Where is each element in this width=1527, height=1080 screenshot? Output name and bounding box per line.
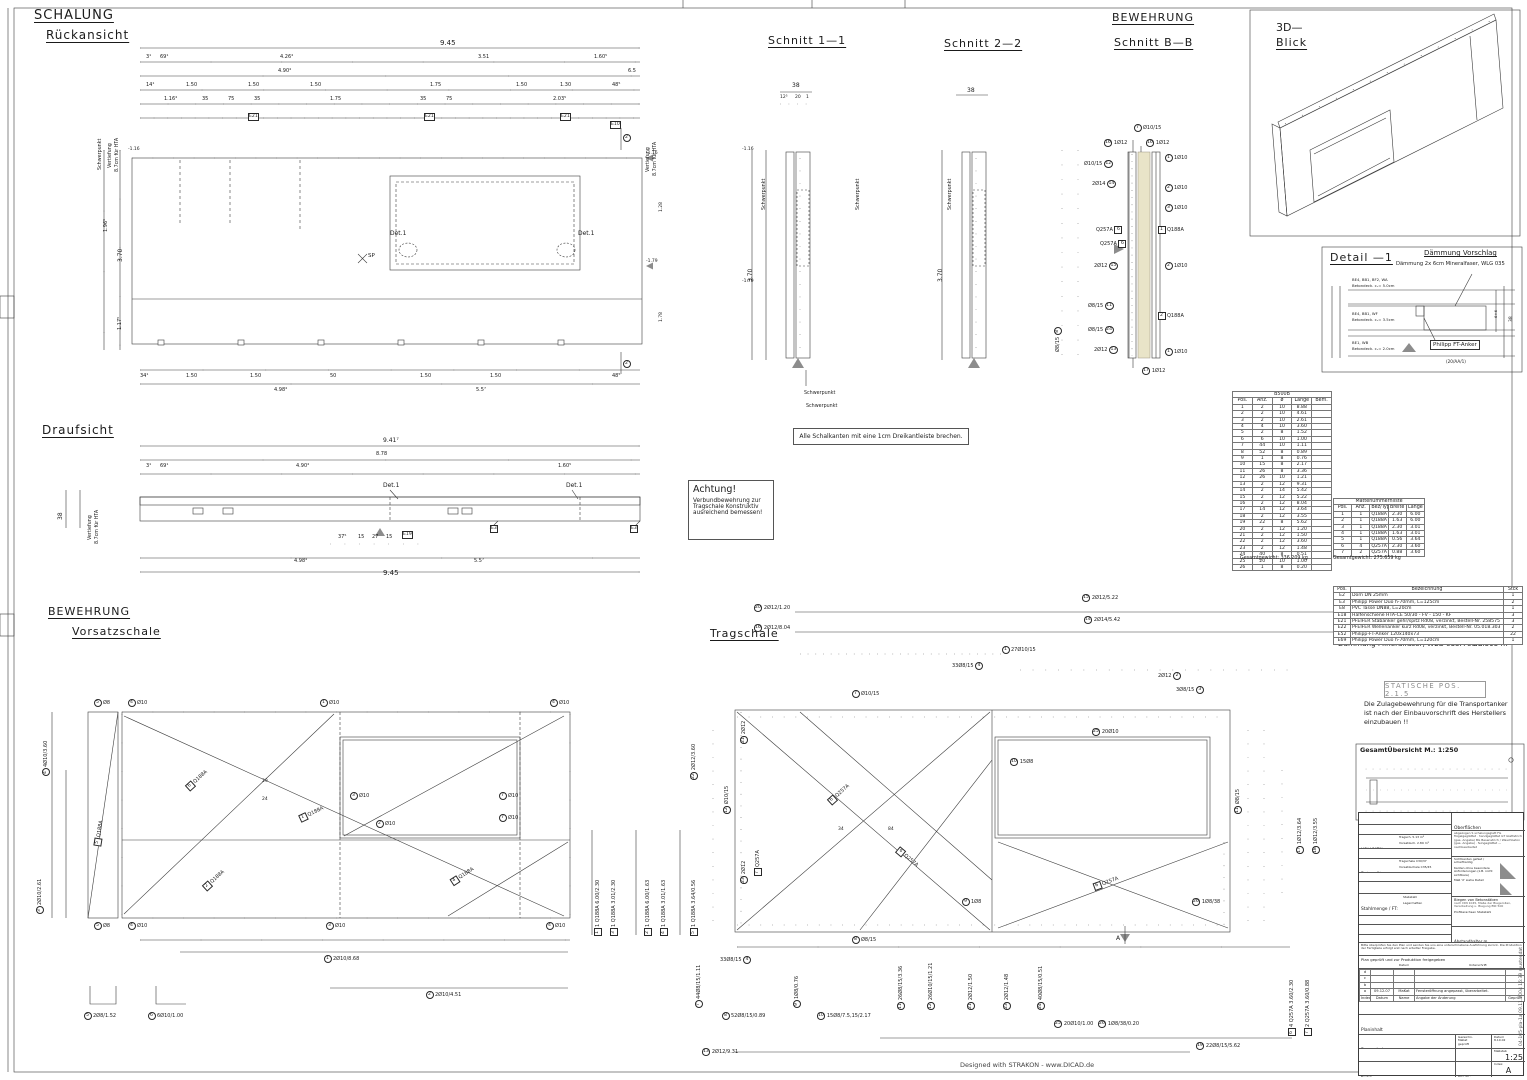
drawing-label: Det.1	[578, 231, 594, 238]
callout-suffix: 1Ø10	[1174, 156, 1187, 161]
mesh-callout: 7 2 Q257A 3.60/0.88	[1304, 980, 1312, 1038]
uebersicht-minimap	[1356, 744, 1524, 820]
position-number-badge: 21	[967, 1002, 975, 1011]
position-number-badge: 26	[1098, 1020, 1107, 1028]
position-number-badge: 7	[499, 792, 507, 800]
embed-row: E22PFEIFER Wellenanker kurz Rd08, verzin…	[1334, 625, 1523, 631]
rebar-callout: 3 Ø10	[348, 792, 369, 800]
position-number-badge: 2	[644, 929, 652, 937]
callout-suffix: 1 Q188A 3.01/2.30	[612, 880, 617, 927]
callout-suffix: 6Ø10/1.00	[157, 1014, 183, 1019]
drawing-label: 1.50	[516, 83, 527, 89]
position-number-badge: 3	[36, 907, 44, 915]
position-number-badge: 10	[817, 1012, 826, 1020]
drawing-label: 50	[330, 374, 336, 380]
achtung-title: Achtung!	[693, 484, 769, 495]
callout-prefix: 2Ø14	[1092, 182, 1105, 187]
tb-freigabe: Bitte überprüfen Sie den Plan und senden…	[1359, 943, 1525, 956]
rebar-callout: 1 2Ø10/8.68	[322, 955, 359, 963]
rebar-callout: 9 1Ø8/0.76	[793, 976, 801, 1010]
position-number-badge: 6	[1114, 226, 1122, 234]
position-number-badge: 9	[962, 898, 970, 906]
callout-suffix: 1Ø8/38	[1202, 900, 1220, 905]
drawing-label: 8.78	[376, 452, 387, 458]
callout-suffix: 2Ø12	[742, 721, 747, 734]
tb-auftraggeber: Auftraggeber	[1359, 1049, 1455, 1062]
mesh-callout: E3	[628, 525, 640, 533]
ft-anker-label: Philipp FT-Anker	[1430, 340, 1480, 350]
tb-datum-label: Datum	[1399, 964, 1409, 967]
callout-suffix: 2Ø14/5.42	[1094, 618, 1120, 623]
embed-row: E21PFEIFER Stabanker gehr/spitz Rd08, ve…	[1334, 619, 1523, 625]
drawing-sheet: SCHALUNG Rückansicht Schnitt 1—1 Schnitt…	[0, 0, 1527, 1080]
mesh-callout: 5 1 Q188A 3.64/0.56	[690, 880, 698, 938]
callout-suffix: 15Ø8/7.5,15/2.17	[827, 1014, 871, 1019]
rebar-callout: 5 2Ø8/1.52	[82, 1012, 116, 1020]
rebar-callout: 19 22Ø8/15/5.62	[1194, 1042, 1240, 1050]
position-number-badge: E3	[630, 525, 639, 533]
position-number-badge: 3	[610, 929, 618, 937]
rebar-callout: 2 2Ø10/4.51	[424, 991, 461, 999]
drawing-label: 9.41⁷	[383, 438, 399, 445]
tb-flaeche: FLÄCHE: m²	[1359, 825, 1451, 835]
callout-suffix: 2Ø12/9.31	[712, 1050, 738, 1055]
rebar-callout: 2Ø12 15	[1094, 262, 1119, 270]
statik-note-1: Die Zulagebewehrung für die Transportank…	[1364, 701, 1508, 708]
drawing-label: 5.5⁷	[476, 388, 486, 394]
callout-prefix: 2Ø12	[1094, 348, 1107, 353]
position-number-badge: 2	[426, 991, 434, 999]
drawing-label: 3¹	[146, 464, 151, 470]
position-number-badge: 5	[84, 1012, 92, 1020]
rebar-callout: 1 1Ø10	[1163, 348, 1187, 356]
position-number-badge: 1	[320, 699, 328, 707]
position-number-badge: 4	[743, 956, 751, 964]
drawing-label: BE1, WB	[1352, 341, 1368, 345]
rebar-callout: 2	[621, 134, 632, 142]
drawing-label: 1.50	[248, 83, 259, 89]
position-number-badge: 15	[1082, 594, 1091, 602]
tb-stahl: Stahlmenge / FT: Stabstahl Lagermatten	[1359, 894, 1451, 916]
drawing-label: Schwerpunkt	[804, 391, 835, 396]
drawing-label: 69¹	[160, 55, 168, 61]
tb-bauteil-label: Bauteil	[1361, 1075, 1372, 1077]
position-number-badge: 9	[793, 1001, 801, 1009]
position-number-badge: 11	[1234, 806, 1242, 815]
mesh-total: Gesamtgewicht: 275.659 kg	[1333, 556, 1401, 561]
tragschale-view	[592, 612, 1470, 1052]
callout-suffix: 22Ø8/15/5.62	[1206, 1044, 1240, 1049]
detail-code-label: (20/AA/1)	[1446, 360, 1466, 365]
rebar-callout: 7 Ø10	[497, 814, 518, 822]
tb-stahl-1: Stabstahl	[1403, 896, 1417, 899]
steel-row: 26180.20	[1233, 564, 1332, 570]
callout-suffix: 1Ø10	[1174, 264, 1187, 269]
tb-kanten-1: Sichtkanten gefast / scharfkantig	[1454, 858, 1494, 865]
callout-suffix: Ø8	[103, 924, 110, 929]
drawing-label: 1.16⁴	[164, 97, 177, 103]
callout-suffix: 1 Q188A 6.00/2.30	[596, 880, 601, 927]
tb-surfaces-text: abgezogen S schalungsglatt FG flügelgegl…	[1454, 832, 1523, 849]
drawing-label: 27	[372, 535, 378, 541]
callout-suffix: 44Ø8/15/1.11	[697, 965, 702, 999]
callout-suffix: 1 Q188A 6.00/1.63	[646, 880, 651, 927]
rebar-callout: 4 Ø10	[548, 699, 569, 707]
callout-prefix: 2Ø12	[1158, 674, 1171, 679]
schnittbb-title: Schnitt B—B	[1114, 36, 1193, 49]
callout-suffix: 1Ø10	[1174, 206, 1187, 211]
callout-prefix: Ø8/15	[1088, 328, 1103, 333]
tb-profil-label: Profilierachsen Stabstahl	[1454, 911, 1523, 914]
drawing-label: Schwerpunkt	[98, 139, 103, 170]
callout-prefix: 33Ø8/15	[952, 664, 974, 669]
position-number-badge: 12	[927, 1002, 935, 1011]
rueckansicht-view	[104, 48, 653, 384]
title-block: STÜCKZAHL: 1 Stück FLÄCHE: m² VOLUMEN: T…	[1358, 812, 1524, 1076]
callout-suffix: Ø10	[359, 794, 369, 799]
callout-prefix: Ø10/15	[1084, 162, 1102, 167]
drawing-label: 4.90⁴	[296, 464, 309, 470]
mesh-callout: 6 4 Q257A 3.60/2.30	[1288, 980, 1296, 1038]
position-number-badge: 19	[1196, 1042, 1205, 1050]
position-number-badge: 4	[550, 699, 558, 707]
statik-note-3: einzubauen !!	[1364, 719, 1408, 726]
tb-biegen: Biegen von Betonstäben nach DIN 1045, Ma…	[1451, 897, 1525, 927]
position-number-badge: 1	[324, 955, 332, 963]
rebar-callout: 1 27Ø10/15	[1000, 646, 1036, 654]
rebar-callout: 5 Ø8	[92, 922, 110, 930]
position-number-badge: 14	[1107, 180, 1116, 188]
rebar-callout: 33Ø8/15 4	[952, 662, 985, 670]
position-number-badge: 1	[1165, 348, 1173, 356]
rebar-callout: 23 2Ø12/1.48	[1003, 974, 1011, 1012]
callout-suffix: 2Ø12/5.22	[1092, 596, 1118, 601]
tb-interne: interne dB-Position	[1359, 916, 1451, 925]
drawing-label: 1.50	[186, 374, 197, 380]
tb-betonguete-1: Tragschale C30/37	[1399, 860, 1427, 863]
mesh-callout: 1 Q188A	[1156, 226, 1184, 234]
drawing-label: Schwerpunkt	[856, 179, 861, 210]
tb-gezeichnet: Gezeichn. MaKat geprüft	[1455, 1035, 1491, 1049]
drawing-label: 8.7cm für HTA	[115, 138, 120, 172]
tb-index-value: A	[1494, 1066, 1523, 1075]
position-number-badge: 3	[1165, 204, 1173, 212]
tb-auftragsnr: Auftragsnummer	[1455, 1049, 1491, 1062]
position-number-badge: 25	[1092, 728, 1101, 736]
schalkanten-note: Alle Schalkanten mit eine 1cm Dreikantle…	[793, 428, 969, 445]
position-number-badge: 11	[897, 1002, 905, 1011]
callout-prefix: Ø8/15	[1056, 337, 1061, 352]
rebar-callout: 13 2Ø12/9.31	[700, 1048, 738, 1056]
tb-surfaces: abgezogen S schalungsglatt FG flügelgegl…	[1451, 831, 1525, 857]
vorsatzschale-title: Vorsatzschale	[72, 625, 161, 638]
mesh-callout: E21	[246, 113, 261, 121]
position-number-badge: 16	[1146, 139, 1155, 147]
callout-suffix: 1Ø8/0.76	[795, 976, 800, 999]
position-number-badge: 5	[93, 838, 102, 847]
callout-suffix: 52Ø8/15/0.89	[731, 1014, 765, 1019]
mesh-callout: E19	[400, 531, 415, 539]
vorsatzschale-view	[52, 712, 570, 1004]
drawing-label: 69¹	[160, 464, 168, 470]
rebar-callout: 15 2Ø12/5.22	[1080, 594, 1118, 602]
drawing-label: 1.75	[330, 97, 341, 103]
rebar-callout: 5 Ø8	[92, 699, 110, 707]
position-number-badge: 1	[1002, 646, 1010, 654]
drawing-label: 1.60⁵	[558, 464, 571, 470]
callout-suffix: Ø10	[329, 701, 339, 706]
mesh-callout: 4 1 Q188A 3.01/1.63	[660, 880, 668, 938]
rebar-callout: 16 2Ø12/8.04	[752, 624, 790, 632]
rebar-callout: 4 4Ø10/3.60	[42, 741, 50, 778]
rebar-callout: 4 Ø10	[126, 922, 147, 930]
drawing-label: 4.98⁴	[274, 388, 287, 394]
rebar-callout: 2	[621, 360, 632, 368]
tb-stueckzahl: STÜCKZAHL: 1 Stück	[1359, 813, 1451, 825]
position-number-badge: 2	[376, 820, 384, 828]
callout-prefix: 2Ø12	[1094, 264, 1107, 269]
rebar-callout: 12 26Ø10/15/1.21	[927, 963, 935, 1012]
drawing-label: 75	[228, 97, 234, 103]
drawing-label: 48⁵	[612, 374, 620, 380]
rebar-callout: 26 1Ø8/38	[1190, 898, 1220, 906]
drawing-label: 4.26⁴	[280, 55, 293, 61]
callout-prefix: Q257A	[1096, 228, 1113, 233]
drawing-label: 38	[58, 512, 65, 520]
position-number-badge: 18	[1312, 846, 1320, 855]
rebar-callout: 8 52Ø8/15/0.89	[720, 1012, 765, 1020]
callout-suffix: 2Ø12/1.50	[969, 974, 974, 1000]
callout-suffix: Ø10/15	[861, 692, 879, 697]
drawing-label: 2.03⁵	[553, 97, 566, 103]
drawing-label: 1.96⁵	[104, 219, 110, 232]
callout-suffix: 1Ø10	[1174, 350, 1187, 355]
rebar-callout: 24 40Ø8/15/0.51	[1037, 966, 1045, 1012]
drawing-label: Det.1	[383, 483, 399, 490]
drawing-label: 1.28	[660, 202, 665, 212]
rebar-callout: 25 20Ø10	[1090, 728, 1119, 736]
tb-planinhalt-label: Planinhalt	[1361, 1028, 1383, 1033]
blick3d-title-2: Blick	[1276, 36, 1307, 49]
drawing-label: 1.50	[420, 374, 431, 380]
steel-bar-list: B500B Pos. Anz. ø Länge Bem. 12108.88 22…	[1232, 391, 1332, 571]
drawing-label: 1.78	[660, 312, 665, 322]
drawing-label: BE4, BB1, WF	[1352, 312, 1378, 316]
position-number-badge: 1	[1158, 226, 1166, 234]
daemmung-mineral-label: Dämmung 2x 6cm Mineralfaser, WLG 035	[1396, 262, 1505, 268]
position-number-badge: 2	[623, 134, 631, 142]
tb-unterschrift-label: Unterschrift	[1469, 964, 1487, 967]
tb-stahl-2: Lagermatten	[1403, 902, 1422, 905]
drawing-label: -1.16	[742, 148, 754, 153]
callout-suffix: 40Ø8/15/0.51	[1039, 966, 1044, 1000]
rebar-callout: 17 1Ø12/3.64	[1296, 818, 1304, 856]
drawing-label: 35	[254, 97, 260, 103]
tb-volumen: VOLUMEN: Tragsch. 5.13 m³ Vorsatzsch. 2.…	[1359, 835, 1451, 849]
col-typ: Bez/Typ	[1370, 505, 1388, 511]
rebar-callout: 11 Ø8/15	[1234, 789, 1242, 816]
rebar-callout: 7 Ø10/15	[850, 690, 879, 698]
position-number-badge: 5	[94, 699, 102, 707]
drawing-label: 9.45	[383, 570, 399, 578]
callout-suffix: 26Ø10/15/1.21	[929, 963, 934, 1001]
detail1-title: Detail —1	[1330, 251, 1393, 264]
callout-suffix: Q257A	[756, 850, 761, 867]
rebar-callout: 12 Ø10/15	[723, 786, 731, 816]
tb-volumen-2: Vorsatzsch. 2.89 m³	[1399, 842, 1429, 845]
callout-prefix: Q257A	[1100, 242, 1117, 247]
drawing-label: 48⁵	[612, 83, 620, 89]
statik-pos-box: STATISCHE POS. 2.1.5	[1384, 681, 1486, 698]
position-number-badge: 17	[1296, 846, 1304, 855]
callout-suffix: 2Ø12/1.20	[764, 606, 790, 611]
position-number-badge: 7	[1134, 124, 1142, 132]
drawing-label: Betondeck. cᵥ= 3.5cm	[1352, 318, 1395, 322]
uebersicht-title: GesamtÜbersicht M.: 1:250	[1360, 747, 1458, 754]
drawing-label: Schwerpunkt	[948, 179, 953, 210]
callout-suffix: 1Ø8/38/0.20	[1108, 1022, 1139, 1027]
position-number-badge: 5	[94, 922, 102, 930]
col-breite: Breite	[1388, 505, 1406, 511]
drawing-label: 1	[806, 96, 809, 101]
mesh-callout: E21	[422, 113, 437, 121]
rebar-callout: Ø8/15 11	[1088, 302, 1115, 310]
blick3d-title-1: 3D—	[1276, 22, 1302, 34]
draufsicht-view	[66, 446, 640, 572]
rebar-callout: 2Ø12 13	[1094, 346, 1119, 354]
position-number-badge: 6	[1118, 240, 1126, 248]
drawing-label: 20	[795, 96, 801, 101]
drawing-label: 1.50	[490, 374, 501, 380]
tb-plannr-label: Plan-Nr.:	[1458, 1075, 1471, 1077]
callout-suffix: 2Ø12/3.60	[692, 744, 697, 770]
rebar-callout: 11 26Ø8/15/3.36	[897, 966, 905, 1012]
drawing-label: A	[1116, 936, 1120, 943]
drawing-label: 8.7cm für HTA	[653, 142, 658, 176]
callout-suffix: 1 Q188A 3.01/1.63	[662, 880, 667, 927]
rebar-callout: 26 1Ø8/38/0.20	[1096, 1020, 1139, 1028]
drawing-label: 29	[262, 780, 268, 785]
tb-freigabe2-text: Plan geprüft und zur Produktion freigege…	[1361, 957, 1523, 962]
position-number-badge: 8	[1054, 327, 1062, 335]
drawing-label: 37⁵	[338, 535, 346, 541]
kanten-triangle2-icon	[1500, 883, 1512, 895]
tb-freigabe-text: Bitte überprüfen Sie den Plan und senden…	[1361, 944, 1523, 951]
callout-suffix: Q188A	[96, 820, 104, 837]
tb-oberflaechen: Oberflächen Soweit nichts anderes vermer…	[1451, 813, 1525, 831]
rebar-callout: Ø10/15 12	[1084, 160, 1114, 168]
rebar-callout: 10 15Ø8/7.5,15/2.17	[815, 1012, 871, 1020]
position-number-badge: 4	[128, 699, 136, 707]
tb-expo: Expositionskl.: siehe Detail 1	[1359, 873, 1451, 882]
mesh-callout: E3	[488, 525, 500, 533]
col-laenge: Länge	[1292, 398, 1312, 404]
callout-prefix: 33Ø8/15	[720, 958, 742, 963]
drawing-label: Vertiefung	[88, 515, 93, 540]
callout-suffix: Q188A	[1167, 228, 1184, 233]
rebar-callout: 16 1Ø12	[1102, 139, 1127, 147]
rebar-callout: Ø8/15 24	[1088, 326, 1115, 334]
drawing-label: 1.50	[186, 83, 197, 89]
drawing-label: 35	[202, 97, 208, 103]
callout-suffix: Ø10/15	[1143, 126, 1161, 131]
drawing-label: 1.50	[310, 83, 321, 89]
position-number-badge: 4	[128, 922, 136, 930]
callout-suffix: Ø10	[335, 924, 345, 929]
rebar-callout: Ø8/15 8	[1054, 326, 1062, 352]
strakon-credit: Designed with STRAKON - www.DICAD.de	[960, 1062, 1094, 1069]
tb-massstab-value: 1:25	[1494, 1053, 1523, 1062]
tb-geprueft-label: geprüft	[1458, 1043, 1489, 1046]
drawing-label: Vertiefung	[646, 147, 651, 172]
position-number-badge: E21	[248, 113, 260, 121]
position-number-badge: 4	[975, 662, 983, 670]
callout-suffix: Ø10	[508, 816, 518, 821]
position-number-badge: 8	[722, 1012, 730, 1020]
drawing-label: 1.50	[250, 374, 261, 380]
position-number-badge: 25	[1054, 1020, 1063, 1028]
drawing-label: Betondeck. cᵥ= 5.0cm	[1352, 284, 1395, 288]
position-number-badge: E19	[402, 531, 414, 539]
position-number-badge: 10	[1010, 758, 1019, 766]
position-number-badge: 7	[499, 814, 507, 822]
tb-kanten-2: Kanten ohne besondere Anforderungen (z.B…	[1454, 867, 1494, 877]
position-number-badge: 7	[754, 869, 762, 877]
callout-suffix: Ø10	[385, 822, 395, 827]
tb-bauteil: Bauteil Werkplanung	[1359, 1062, 1455, 1077]
tb-abstand: Abstandhalter m. (.DBV-Merkblatt 'Abstan…	[1451, 927, 1525, 943]
drawing-label: 8.7cm für HTA	[95, 510, 100, 544]
callout-suffix: 4 Q257A 3.60/2.30	[1290, 980, 1295, 1027]
rebar-callout: 16 1Ø12	[1144, 139, 1169, 147]
position-number-badge: 2	[1158, 312, 1166, 320]
rebar-callout: 20 2Ø12/1.20	[752, 604, 790, 612]
col-laenge: Länge	[1406, 505, 1424, 511]
schnitt22-title: Schnitt 2—2	[944, 37, 1022, 50]
drawing-label: Betondeck. cᵥ= 2.0cm	[1352, 347, 1395, 351]
rebar-callout: 3 2Ø10/2.61	[36, 879, 44, 916]
drawing-label: 3¹	[146, 55, 151, 61]
rebar-callout: 7 Ø10/15	[1132, 124, 1161, 132]
drawing-label: 12⁵	[780, 96, 788, 101]
callout-suffix: 2Ø10/2.61	[38, 879, 43, 905]
callout-suffix: 2Ø12	[742, 861, 747, 874]
position-number-badge: 3	[1196, 686, 1204, 694]
callout-suffix: Ø8/15	[1236, 789, 1241, 804]
position-number-badge: 13	[1109, 346, 1118, 354]
callout-suffix: 27Ø10/15	[1011, 648, 1036, 653]
callout-suffix: 1Ø8	[971, 900, 981, 905]
callout-suffix: 4Ø10/3.60	[44, 741, 49, 767]
callout-prefix: Ø8/15	[1088, 304, 1103, 309]
callout-suffix: 2Ø8/1.52	[93, 1014, 116, 1019]
mesh-callout: 1 1 Q188A 6.00/2.30	[594, 880, 602, 938]
rebar-callout: 3 Ø10	[324, 922, 345, 930]
rebar-callout: 1 1Ø10	[1163, 154, 1187, 162]
daemmung-vorschlag-label: Dämmung Vorschlag	[1424, 250, 1497, 258]
rebar-callout: 2 1Ø10	[1163, 262, 1187, 270]
callout-suffix: Ø10	[137, 924, 147, 929]
position-number-badge: 12	[723, 806, 731, 815]
tb-empty-box	[1359, 999, 1525, 1015]
drawing-label: 14¹	[146, 83, 154, 89]
position-number-badge: 13	[702, 1048, 711, 1056]
rebar-callout: 2Ø14 14	[1092, 180, 1117, 188]
callout-suffix: 15Ø8	[1020, 760, 1033, 765]
tb-stahl-label: Stahlmenge / FT:	[1361, 907, 1398, 912]
rebar-callout: 18 1Ø12/3.55	[1312, 818, 1320, 856]
position-number-badge: 6	[1288, 1029, 1296, 1037]
